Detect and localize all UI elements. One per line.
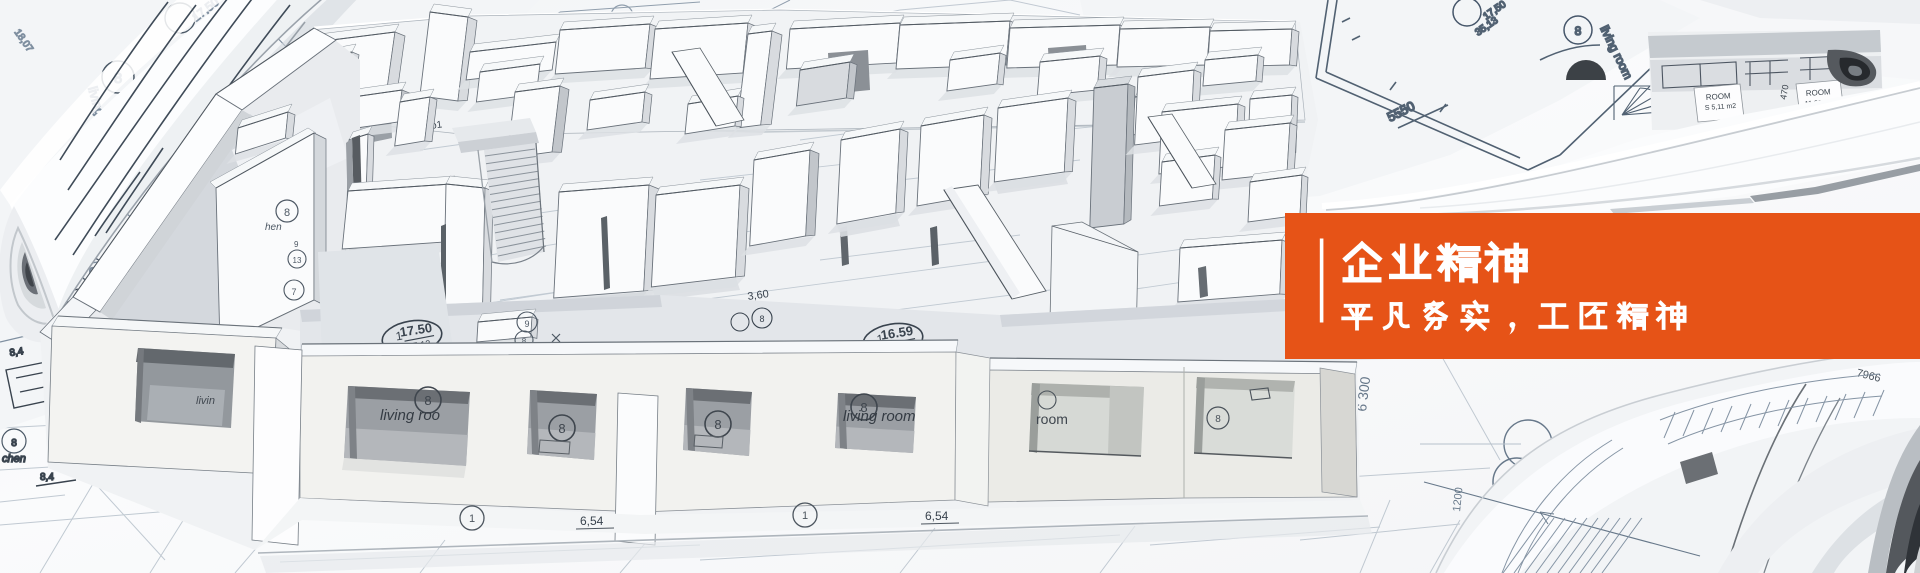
svg-text:6,54: 6,54 xyxy=(925,509,949,523)
svg-text:8: 8 xyxy=(759,314,764,324)
svg-text:6,54: 6,54 xyxy=(580,514,604,528)
svg-text:8,4: 8,4 xyxy=(9,346,25,359)
svg-text:living roo: living roo xyxy=(380,407,440,424)
svg-text:ROOM: ROOM xyxy=(1806,87,1832,98)
svg-text:1: 1 xyxy=(469,513,475,525)
svg-text:8: 8 xyxy=(424,393,431,408)
svg-text:1200: 1200 xyxy=(1451,487,1465,513)
svg-text:living room: living room xyxy=(843,408,916,425)
svg-text:8,4: 8,4 xyxy=(40,472,54,483)
svg-text:7: 7 xyxy=(291,287,296,297)
svg-text:8: 8 xyxy=(558,421,565,436)
svg-text:room: room xyxy=(1036,411,1068,427)
svg-text:8: 8 xyxy=(714,417,721,432)
svg-text:hen: hen xyxy=(265,222,282,233)
svg-text:1: 1 xyxy=(802,510,808,522)
svg-text:chen: chen xyxy=(2,453,26,465)
svg-text:livin: livin xyxy=(196,395,215,407)
svg-text:9: 9 xyxy=(524,319,529,329)
svg-text:8: 8 xyxy=(1575,24,1582,38)
svg-text:ROOM: ROOM xyxy=(1706,91,1732,102)
svg-text:8: 8 xyxy=(1215,414,1221,425)
svg-text:9: 9 xyxy=(294,240,299,249)
svg-text:8: 8 xyxy=(284,207,290,219)
svg-text:13: 13 xyxy=(293,256,302,265)
svg-text:8: 8 xyxy=(11,438,17,449)
